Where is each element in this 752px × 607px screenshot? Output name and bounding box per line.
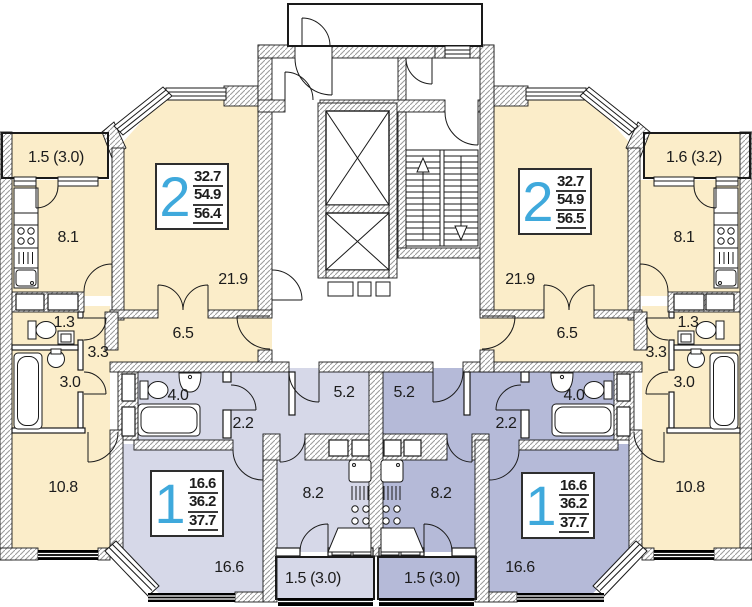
kitchen-sink	[349, 460, 371, 482]
apartment-rooms-count: 2	[522, 172, 554, 231]
room-label-living-top-left: 21.9	[218, 271, 248, 289]
area-total: 56.4	[193, 206, 223, 224]
apartment-areas: 16.6 36.2 37.7	[559, 476, 589, 535]
toilet	[604, 381, 612, 399]
apartment-info-2room-left: 2 32.7 54.9 56.4	[155, 163, 229, 230]
room-label-wc-top-left: 1.3	[53, 314, 74, 332]
area-living: 32.7	[193, 169, 223, 187]
room-label-bathroom-1room-left: 4.0	[167, 387, 188, 405]
room-label-hallway-top-left: 6.5	[172, 325, 193, 343]
floor-plan-drawing	[0, 0, 752, 607]
room-label-balcony-1room-right: 1.5 (3.0)	[404, 570, 460, 588]
room-label-kitchen-top-right: 8.1	[673, 229, 694, 247]
room-label-room-1room-right: 16.6	[505, 559, 535, 577]
room-label-bathroom-1room-right: 4.0	[563, 387, 584, 405]
room-label-balcony-top-left: 1.5 (3.0)	[28, 149, 84, 167]
apartment-rooms-count: 2	[159, 167, 191, 226]
room-label-corridor-top-right: 3.3	[645, 344, 666, 362]
room-label-entry-1room-right: 5.2	[393, 384, 414, 402]
room-label-room-bottom-right: 10.8	[675, 479, 705, 497]
toilet	[716, 321, 724, 339]
kitchen-sink	[381, 460, 403, 482]
floor-plan: 1.5 (3.0) 8.1 21.9 6.5 1.3 3.3 3.0 10.8 …	[0, 0, 752, 607]
area-living: 32.7	[556, 174, 586, 192]
area-usable: 54.9	[193, 187, 223, 205]
apartment-info-1room-left: 1 16.6 36.2 37.7	[150, 470, 224, 537]
area-total: 37.7	[188, 513, 218, 531]
room-label-wc-top-right: 1.3	[677, 314, 698, 332]
room-label-balcony-1room-left: 1.5 (3.0)	[285, 570, 341, 588]
staircase	[406, 150, 478, 246]
apartment-rooms-count: 1	[525, 476, 557, 535]
room-label-corridor-top-left: 3.3	[87, 344, 108, 362]
apartment-info-1room-right: 1 16.6 36.2 37.7	[521, 472, 595, 539]
apartment-areas: 16.6 36.2 37.7	[188, 474, 218, 533]
area-usable: 54.9	[556, 192, 586, 210]
apartment-info-2room-right: 2 32.7 54.9 56.5	[518, 168, 592, 235]
toilet	[140, 381, 148, 399]
room-label-kitchen-1room-left: 8.2	[302, 485, 323, 503]
room-label-room-1room-left: 16.6	[214, 559, 244, 577]
area-total: 37.7	[559, 515, 589, 533]
area-total: 56.5	[556, 211, 586, 229]
room-label-living-top-right: 21.9	[505, 271, 535, 289]
room-label-bathroom-top-right: 3.0	[673, 374, 694, 392]
apartment-rooms-count: 1	[154, 474, 186, 533]
apartment-areas: 32.7 54.9 56.4	[193, 167, 223, 226]
elevator-shafts	[326, 111, 390, 296]
room-label-entry-1room-left: 5.2	[333, 384, 354, 402]
apartment-areas: 32.7 54.9 56.5	[556, 172, 586, 231]
area-living: 16.6	[188, 476, 218, 494]
room-label-hall-1room-left: 2.2	[232, 415, 253, 433]
room-label-balcony-top-right: 1.6 (3.2)	[666, 149, 722, 167]
area-living: 16.6	[559, 478, 589, 496]
room-label-room-bottom-left: 10.8	[48, 479, 78, 497]
toilet	[28, 321, 36, 339]
room-label-kitchen-top-left: 8.1	[57, 229, 78, 247]
room-label-hall-1room-right: 2.2	[495, 415, 516, 433]
area-usable: 36.2	[188, 494, 218, 512]
room-label-kitchen-1room-right: 8.2	[430, 485, 451, 503]
room-label-hallway-top-right: 6.5	[556, 325, 577, 343]
room-label-bathroom-top-left: 3.0	[59, 374, 80, 392]
area-usable: 36.2	[559, 496, 589, 514]
